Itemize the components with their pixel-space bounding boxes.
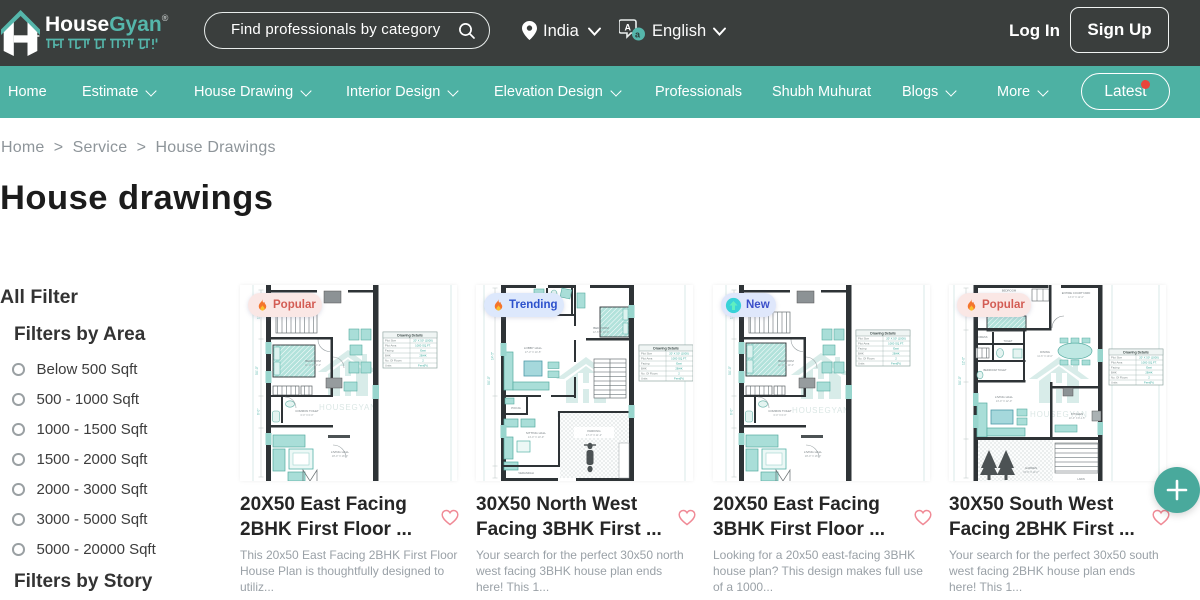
svg-text:10'-0" X 8'-1.5": 10'-0" X 8'-1.5" xyxy=(1069,417,1086,420)
svg-text:50'-0": 50'-0" xyxy=(728,365,732,375)
svg-text:6'-0": 6'-0" xyxy=(257,409,261,415)
svg-text:A: A xyxy=(625,23,632,33)
svg-text:LOBBY HALL: LOBBY HALL xyxy=(524,346,543,350)
svg-text:6'-0": 6'-0" xyxy=(730,409,734,415)
svg-text:17'-3" X 11'-2": 17'-3" X 11'-2" xyxy=(586,433,602,437)
svg-text:6'-0" X 6'-0": 6'-0" X 6'-0" xyxy=(300,414,313,417)
svg-text:13'-0" X 12'-0": 13'-0" X 12'-0" xyxy=(1068,296,1084,299)
svg-text:LAWN: LAWN xyxy=(1077,477,1085,481)
svg-text:17'-3" X 14'-5": 17'-3" X 14'-5" xyxy=(525,350,541,354)
svg-text:12'-6" X 10'-0": 12'-6" X 10'-0" xyxy=(593,330,609,334)
svg-text:6'-0" X 6'-0": 6'-0" X 6'-0" xyxy=(773,414,786,417)
svg-text:SITTING HALL: SITTING HALL xyxy=(526,431,547,435)
svg-text:DRESS: DRESS xyxy=(979,335,988,339)
svg-text:11'-9" X 10'-0": 11'-9" X 10'-0" xyxy=(305,363,321,367)
svg-text:COMMON TOILET: COMMON TOILET xyxy=(768,409,792,413)
svg-text:12'-0": 12'-0" xyxy=(962,357,966,365)
svg-text:BEDROOM: BEDROOM xyxy=(778,359,794,363)
svg-text:BEDROOM: BEDROOM xyxy=(593,326,609,330)
svg-text:11'-9" X 10'-0": 11'-9" X 10'-0" xyxy=(778,363,794,367)
svg-text:50'-0": 50'-0" xyxy=(958,375,962,385)
svg-text:PARKING: PARKING xyxy=(587,429,601,433)
svg-text:KITCHEN: KITCHEN xyxy=(1071,412,1083,416)
svg-text:14'-5": 14'-5" xyxy=(491,352,495,360)
svg-text:LIVING HALL: LIVING HALL xyxy=(331,450,350,454)
svg-text:15'-0" X 11'-0": 15'-0" X 11'-0" xyxy=(1023,471,1039,474)
svg-text:14'-0" X 10'-9": 14'-0" X 10'-9" xyxy=(528,435,544,439)
svg-text:50'-0": 50'-0" xyxy=(255,365,259,375)
svg-text:DINING: DINING xyxy=(1040,350,1050,354)
svg-text:LIVING HALL: LIVING HALL xyxy=(804,450,823,454)
svg-text:TOILET: TOILET xyxy=(1003,339,1012,343)
svg-text:POOJA: POOJA xyxy=(511,406,521,410)
svg-text:VERANDAH: VERANDAH xyxy=(518,471,534,475)
svg-text:50'-0": 50'-0" xyxy=(487,375,491,385)
svg-text:GARDEN: GARDEN xyxy=(1025,466,1037,470)
svg-text:ENTIRE COURTYARD: ENTIRE COURTYARD xyxy=(1062,291,1091,295)
svg-text:LIVING HALL: LIVING HALL xyxy=(995,395,1014,399)
svg-text:BEDROOM: BEDROOM xyxy=(305,359,321,363)
svg-text:BEDROOM TOILET: BEDROOM TOILET xyxy=(983,368,1007,372)
svg-text:11'-6" X 10'-0": 11'-6" X 10'-0" xyxy=(1037,355,1053,358)
svg-text:13'-0" X 12'-0": 13'-0" X 12'-0" xyxy=(996,399,1012,403)
svg-text:BEDROOM: BEDROOM xyxy=(1002,289,1017,293)
svg-text:COMMON TOILET: COMMON TOILET xyxy=(295,409,319,413)
